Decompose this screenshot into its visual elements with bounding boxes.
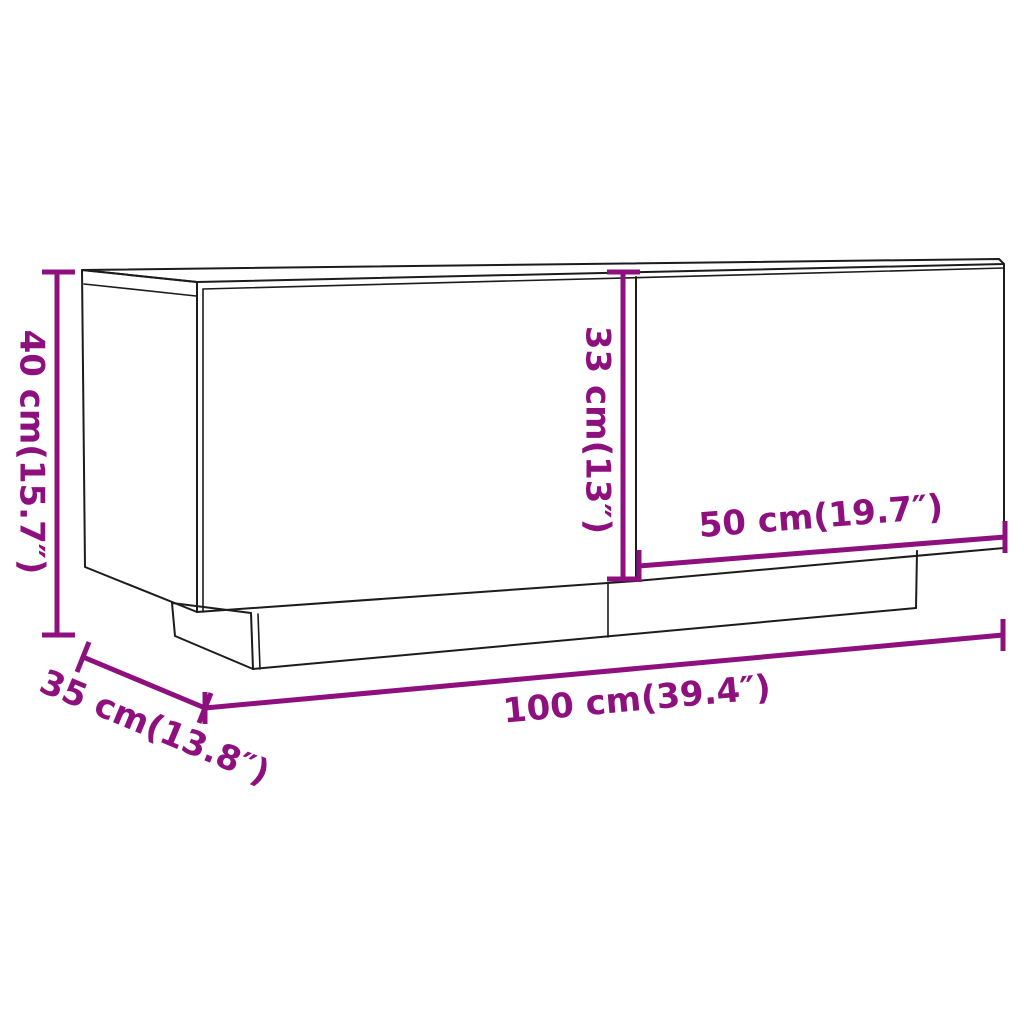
plinth-bottom-edge	[253, 608, 916, 669]
dimension-door-height: 33 cm(13″)	[578, 272, 641, 579]
cabinet-left-side-panel	[82, 270, 197, 612]
cabinet-top-face	[82, 259, 1004, 282]
cabinet-drawing	[82, 259, 1004, 669]
tv-cabinet-diagram-canvas: 40 cm(15.7″) 33 cm(13″) 50 cm(19.7″) 100…	[0, 0, 1024, 1024]
dimension-label-door-height: 33 cm(13″)	[578, 326, 618, 534]
dimension-depth: 35 cm(13.8″)	[34, 642, 275, 793]
dimension-height: 40 cm(15.7″)	[12, 272, 76, 635]
dimension-label-height: 40 cm(15.7″)	[12, 330, 52, 575]
cabinet-top-panel-edge	[84, 284, 196, 296]
left-door-bottom-edge	[197, 581, 636, 612]
dimension-label-door-width: 50 cm(19.7″)	[697, 487, 944, 546]
plinth-right-edge	[916, 551, 917, 608]
dimension-line	[639, 537, 1005, 566]
dimension-diagram: 40 cm(15.7″) 33 cm(13″) 50 cm(19.7″) 100…	[0, 0, 1024, 1024]
dimension-label-depth: 35 cm(13.8″)	[34, 662, 275, 793]
plinth-front-left-edge	[258, 614, 260, 669]
dimension-door-width: 50 cm(19.7″)	[639, 487, 1005, 582]
plinth-left-face	[172, 603, 253, 669]
